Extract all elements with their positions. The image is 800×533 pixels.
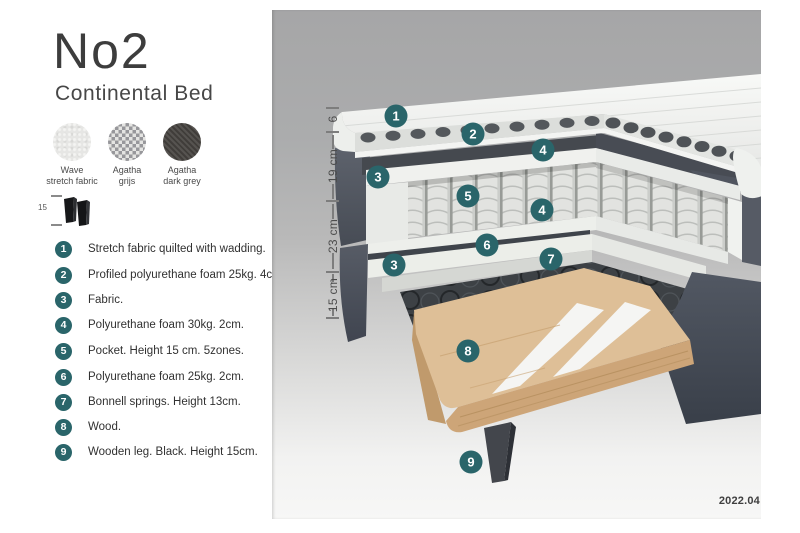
legend-item: 9 Wooden leg. Black. Height 15cm. [55, 443, 258, 461]
legend-badge: 4 [55, 317, 72, 334]
diagram-badge: 2 [462, 123, 485, 146]
legend-badge: 5 [55, 343, 72, 360]
product-title: No2 [53, 22, 151, 80]
legend-badge: 1 [55, 241, 72, 258]
swatch-agatha-dark-grey [163, 123, 201, 161]
legend-item: 1 Stretch fabric quilted with wadding. [55, 240, 266, 258]
leg-height-label: 15 [38, 203, 47, 212]
legend-item: 6 Polyurethane foam 25kg. 2cm. [55, 368, 244, 386]
legend-badge: 6 [55, 369, 72, 386]
leg-icon [60, 196, 94, 228]
legend-badge: 7 [55, 394, 72, 411]
product-subtitle: Continental Bed [55, 82, 213, 106]
legend-item: 2 Profiled polyurethane foam 25kg. 4cm. [55, 266, 285, 284]
legend-item: 7 Bonnell springs. Height 13cm. [55, 393, 241, 411]
legend-text: Stretch fabric quilted with wadding. [88, 243, 266, 255]
legend-text: Wooden leg. Black. Height 15cm. [88, 446, 258, 458]
legend-text: Polyurethane foam 30kg. 2cm. [88, 319, 244, 331]
legend-item: 3 Fabric. [55, 291, 123, 309]
measurement-label: 23 cm [325, 211, 341, 261]
diagram-badge: 1 [385, 105, 408, 128]
measurement-label: 6 [325, 99, 341, 139]
diagram-badge: 3 [367, 166, 390, 189]
diagram-badge: 8 [457, 340, 480, 363]
diagram-badge: 5 [457, 185, 480, 208]
legend-text: Fabric. [88, 294, 123, 306]
legend-text: Bonnell springs. Height 13cm. [88, 396, 241, 408]
measurement-tick [326, 200, 339, 202]
legend-item: 8 Wood. [55, 418, 121, 436]
legend-text: Pocket. Height 15 cm. 5zones. [88, 345, 244, 357]
measurement-label: 15 cm [325, 270, 341, 320]
diagram-badge: 7 [540, 248, 563, 271]
legend-item: 4 Polyurethane foam 30kg. 2cm. [55, 316, 244, 334]
swatch-agatha-grijs [108, 123, 146, 161]
swatch-wave-stretch-fabric [53, 123, 91, 161]
legend-text: Wood. [88, 421, 121, 433]
legend-item: 5 Pocket. Height 15 cm. 5zones. [55, 342, 244, 360]
legend-badge: 8 [55, 419, 72, 436]
diagram-badge: 4 [532, 139, 555, 162]
swatch-label: Agathadark grey [152, 165, 212, 187]
legend-badge: 2 [55, 267, 72, 284]
legend-badge: 9 [55, 444, 72, 461]
swatch-label: Wavestretch fabric [42, 165, 102, 187]
diagram-badge: 9 [460, 451, 483, 474]
diagram-panel [272, 10, 761, 519]
legend-badge: 3 [55, 292, 72, 309]
measurement-label: 19 cm [325, 141, 341, 191]
swatch-label: Agathagrijs [97, 165, 157, 187]
legend-text: Profiled polyurethane foam 25kg. 4cm. [88, 269, 285, 281]
page-container: No2 Continental Bed Wavestretch fabric A… [0, 0, 800, 533]
version-label: 2022.04 [660, 495, 760, 507]
diagram-badge: 3 [383, 254, 406, 277]
diagram-badge: 4 [531, 199, 554, 222]
diagram-badge: 6 [476, 234, 499, 257]
legend-text: Polyurethane foam 25kg. 2cm. [88, 371, 244, 383]
